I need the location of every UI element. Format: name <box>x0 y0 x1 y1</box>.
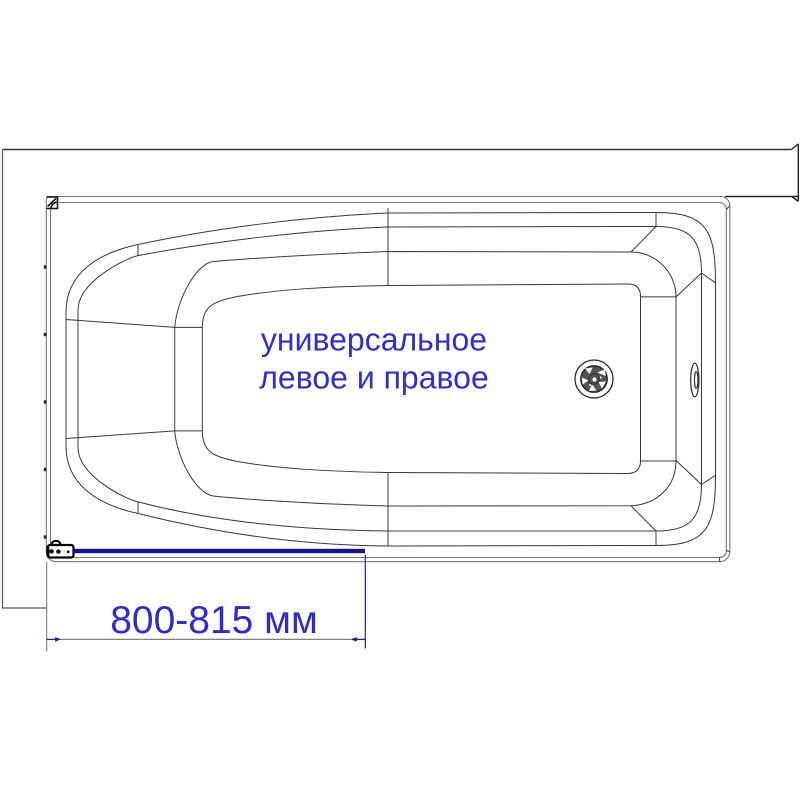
svg-text:универсальное: универсальное <box>261 322 487 358</box>
svg-text:левое и правое: левое и правое <box>259 360 489 396</box>
svg-text:800-815 мм: 800-815 мм <box>110 599 318 642</box>
